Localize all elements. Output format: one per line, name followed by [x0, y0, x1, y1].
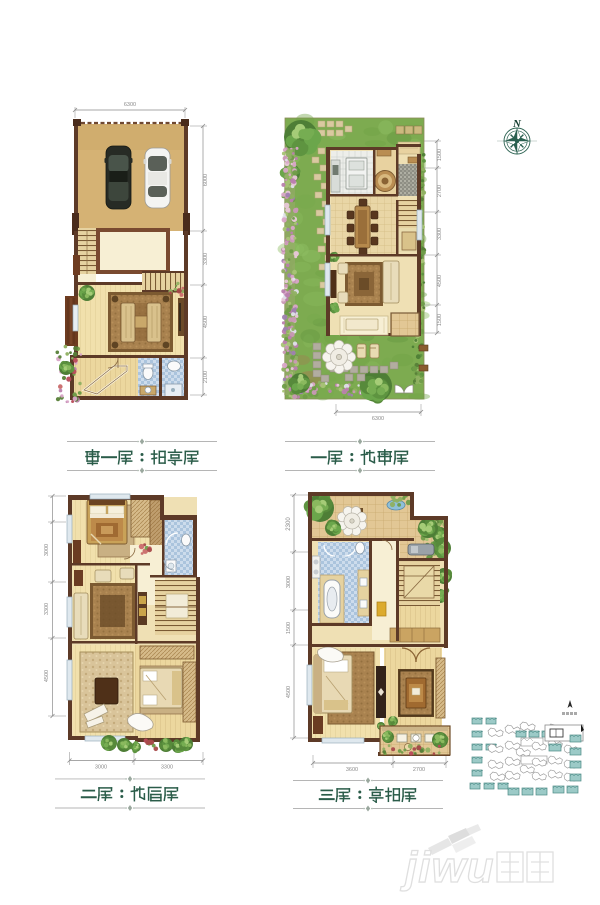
svg-text:4500: 4500: [44, 670, 50, 682]
svg-text:1500: 1500: [437, 149, 443, 161]
svg-text:3000: 3000: [286, 576, 292, 588]
svg-text:3300: 3300: [203, 253, 209, 265]
svg-text:4500: 4500: [203, 316, 209, 328]
svg-text:1500: 1500: [437, 314, 443, 326]
svg-text:3000: 3000: [44, 544, 50, 556]
svg-text:3600: 3600: [346, 767, 358, 773]
svg-text:jiwu: jiwu: [400, 843, 495, 892]
svg-text:6300: 6300: [372, 416, 384, 422]
svg-text:2300: 2300: [286, 517, 292, 531]
svg-text:6300: 6300: [124, 102, 136, 108]
svg-text:1500: 1500: [286, 622, 292, 634]
svg-text:6000: 6000: [203, 174, 209, 186]
svg-text:2700: 2700: [437, 185, 443, 197]
svg-text:N: N: [512, 118, 522, 130]
svg-text:4500: 4500: [437, 275, 443, 287]
svg-text:3300: 3300: [437, 228, 443, 240]
svg-text:3000: 3000: [95, 765, 107, 771]
svg-text:2700: 2700: [413, 767, 425, 773]
svg-text:4500: 4500: [286, 686, 292, 698]
svg-text:3300: 3300: [44, 603, 50, 615]
svg-text:2100: 2100: [203, 371, 209, 383]
svg-text:3300: 3300: [161, 765, 173, 771]
